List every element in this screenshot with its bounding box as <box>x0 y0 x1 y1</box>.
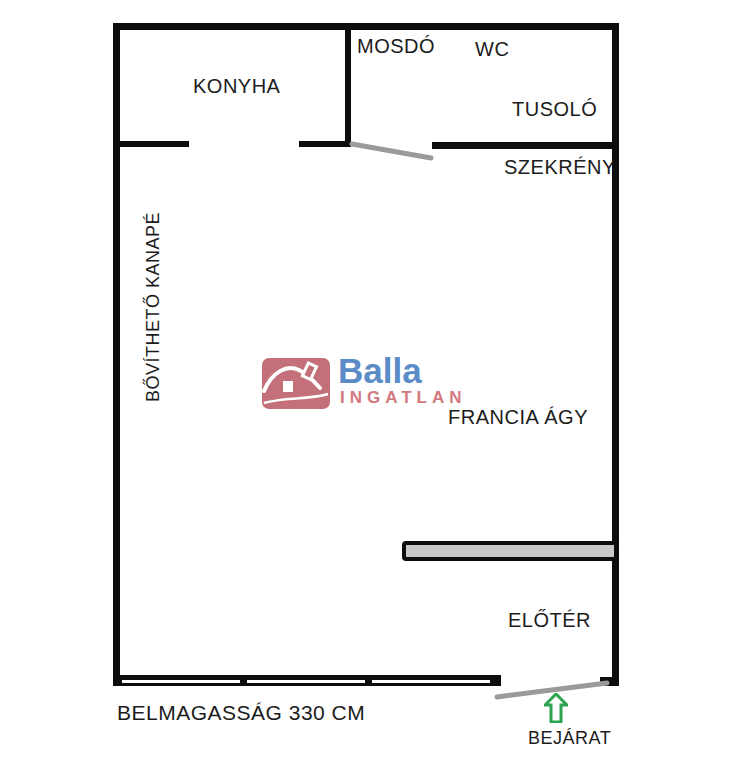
entrance-label: BEJÁRAT <box>528 729 611 749</box>
window-segment <box>247 680 365 683</box>
window-segment <box>372 680 490 683</box>
room-label-eloter: ELŐTÉR <box>508 609 591 631</box>
outer-wall-top <box>113 23 619 30</box>
outer-wall-left <box>113 23 120 686</box>
balla-ingatlan-logo: Balla INGATLAN <box>262 356 482 412</box>
wall-kitchen-bottom-left <box>113 141 189 147</box>
logo-brand-text: Balla <box>338 352 422 391</box>
bathroom-door-swing <box>352 144 431 158</box>
floorplan-canvas: KONYHA MOSDÓ WC TUSOLÓ SZEKRÉNY BŐVÍTHET… <box>0 0 737 768</box>
wall-kitchen-bathroom-divider <box>345 23 351 147</box>
outer-wall-right <box>612 23 619 686</box>
counter-bar <box>402 541 618 561</box>
room-label-wc: WC <box>475 38 509 60</box>
room-label-mosdo: MOSDÓ <box>357 35 435 57</box>
house-icon <box>262 358 330 409</box>
room-label-szekreny: SZEKRÉNY <box>504 156 616 178</box>
room-label-konyha: KONYHA <box>193 75 280 97</box>
logo-subtitle-text: INGATLAN <box>340 389 467 408</box>
room-label-tusolo: TUSOLÓ <box>512 98 597 120</box>
wall-kitchen-bottom-right <box>299 141 351 147</box>
wall-bathroom-bottom <box>432 142 619 149</box>
entrance-wall-stub <box>600 677 619 686</box>
window-segment <box>122 680 240 683</box>
room-label-kanape: BŐVÍTHETŐ KANAPÉ <box>143 212 164 402</box>
entrance-arrow-icon <box>544 693 568 723</box>
ceiling-height-note: BELMAGASSÁG 330 CM <box>117 701 365 724</box>
